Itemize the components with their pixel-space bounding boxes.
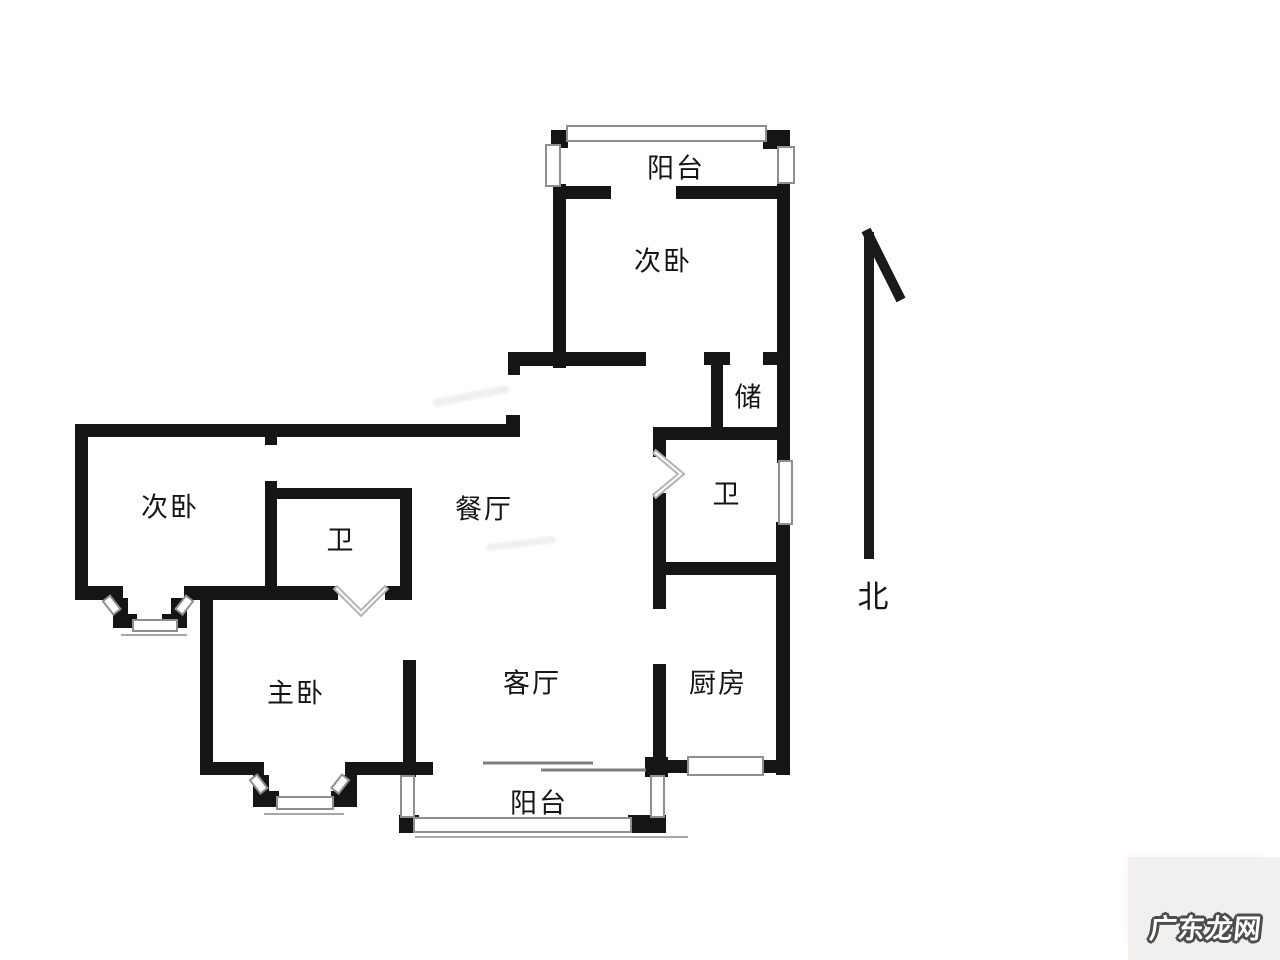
room-label-kitchen: 厨房 bbox=[689, 662, 747, 701]
window bbox=[401, 776, 414, 817]
room-label-bath-right: 卫 bbox=[713, 473, 742, 512]
wall bbox=[776, 522, 790, 775]
wall bbox=[777, 180, 790, 463]
window bbox=[778, 147, 794, 183]
window bbox=[567, 126, 766, 141]
wall bbox=[265, 435, 277, 445]
wall bbox=[508, 352, 646, 366]
bay-window-wall bbox=[331, 791, 357, 807]
watermark-text: 广东龙网 bbox=[1148, 907, 1264, 946]
wall bbox=[653, 427, 789, 440]
room-label-bedroom-left: 次卧 bbox=[141, 486, 199, 525]
doors bbox=[337, 453, 681, 613]
north-label: 北 bbox=[858, 572, 889, 617]
window bbox=[546, 145, 560, 186]
room-label-master-bedroom: 主卧 bbox=[267, 672, 325, 711]
door-swing-icon bbox=[656, 453, 681, 495]
thin-lines bbox=[483, 763, 646, 770]
wall bbox=[663, 760, 690, 773]
wall bbox=[653, 493, 666, 609]
watermark-panel: 广东龙网 bbox=[1128, 857, 1280, 960]
wall bbox=[75, 586, 123, 600]
wall bbox=[508, 352, 520, 375]
wall bbox=[184, 586, 338, 600]
room-label-bath-left: 卫 bbox=[327, 519, 356, 558]
room-label-dining: 餐厅 bbox=[455, 488, 513, 527]
window bbox=[779, 461, 792, 524]
wall bbox=[265, 488, 412, 499]
north-arrow-icon bbox=[866, 230, 901, 559]
wall bbox=[403, 660, 416, 777]
wall bbox=[762, 760, 790, 773]
room-label-living: 客厅 bbox=[503, 662, 561, 701]
walls bbox=[75, 130, 790, 833]
room-label-storage: 储 bbox=[735, 376, 764, 415]
floor-plan-drawing bbox=[0, 0, 1280, 960]
wall bbox=[553, 186, 611, 199]
wall bbox=[200, 598, 213, 775]
wall bbox=[711, 352, 723, 429]
wall bbox=[345, 762, 433, 775]
bay-window-wall bbox=[253, 791, 279, 807]
floor-plan: 阳台 次卧 储 卫 餐厅 次卧 卫 主卧 客厅 厨房 阳台 北 广东龙网 bbox=[0, 0, 1280, 960]
wall bbox=[676, 186, 790, 199]
bay-window bbox=[133, 620, 177, 631]
wall bbox=[400, 488, 412, 600]
wall bbox=[75, 424, 516, 437]
window bbox=[651, 776, 664, 817]
wall bbox=[653, 562, 789, 575]
room-label-balcony-top: 阳台 bbox=[647, 147, 705, 186]
door-swing-icon bbox=[337, 589, 385, 613]
bay-window bbox=[277, 797, 333, 809]
window bbox=[688, 757, 763, 775]
room-label-balcony-bottom: 阳台 bbox=[510, 782, 568, 821]
wall bbox=[75, 424, 88, 594]
wall bbox=[200, 762, 264, 775]
wall bbox=[553, 184, 566, 368]
room-label-bedroom-top: 次卧 bbox=[634, 240, 692, 279]
wall bbox=[763, 352, 777, 365]
